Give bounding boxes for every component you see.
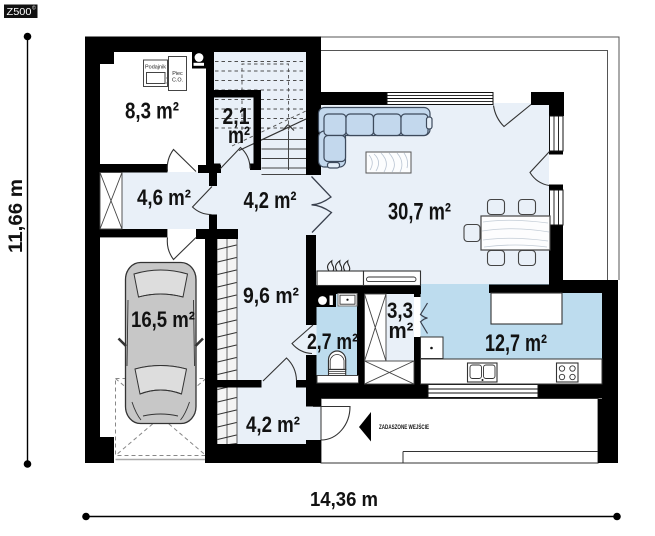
svg-text:Z500: Z500 [7,6,32,18]
svg-text:30,7 m²: 30,7 m² [388,199,451,226]
svg-text:9,6 m²: 9,6 m² [243,283,299,308]
svg-text:ZADASZONE WEJŚCIE: ZADASZONE WEJŚCIE [379,424,429,431]
svg-text:14,36 m: 14,36 m [310,489,378,511]
svg-text:16,5 m²: 16,5 m² [131,307,195,332]
svg-text:11,66 m: 11,66 m [6,179,27,253]
svg-text:2,7 m²: 2,7 m² [307,329,358,354]
svg-text:8,3 m²: 8,3 m² [125,98,179,124]
svg-text:m²: m² [389,318,414,343]
svg-text:©: © [32,5,36,12]
svg-text:4,6 m²: 4,6 m² [137,185,191,210]
svg-text:4,2 m²: 4,2 m² [244,187,297,213]
svg-text:Piec: Piec [172,71,183,77]
svg-text:12,7 m²: 12,7 m² [485,330,547,357]
svg-text:m²: m² [228,122,250,148]
svg-text:4,2 m²: 4,2 m² [246,412,300,437]
svg-text:Podajnik: Podajnik [145,65,166,71]
svg-text:C.O.: C.O. [172,78,183,84]
